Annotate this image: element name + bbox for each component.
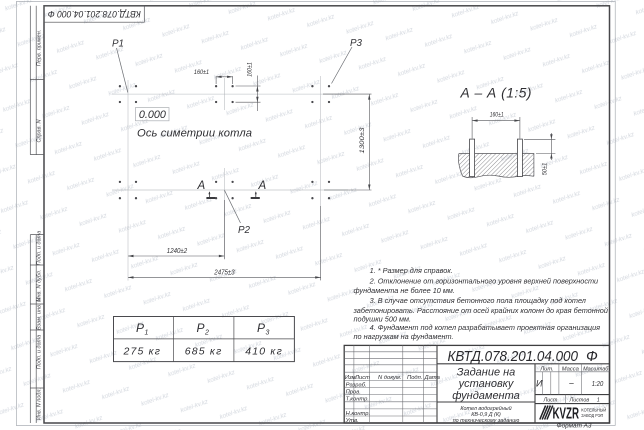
svg-text:2475±3: 2475±3 (213, 267, 234, 276)
svg-text:забетонировать. Расстояние от: забетонировать. Расстояние от осей крайн… (353, 306, 608, 315)
svg-text:Взам. инв. N: Взам. инв. N (36, 298, 42, 330)
svg-text:И: И (536, 379, 543, 389)
svg-text:2. Отклонение от горизонтально: 2. Отклонение от горизонтального уровня … (369, 277, 599, 286)
svg-text:N докум.: N докум. (378, 375, 401, 381)
svg-text:50±1: 50±1 (542, 162, 549, 175)
svg-text:Перв. примен.: Перв. примен. (36, 30, 42, 67)
svg-text:P2: P2 (238, 224, 250, 236)
svg-text:Масса: Масса (562, 366, 580, 372)
svg-text:1300±3: 1300±3 (359, 127, 366, 153)
svg-text:1: 1 (597, 398, 600, 404)
svg-text:установку: установку (458, 378, 515, 390)
svg-text:Т.контр.: Т.контр. (346, 397, 369, 403)
svg-text:1. * Размер для справок.: 1. * Размер для справок. (370, 266, 453, 275)
svg-text:P: P (136, 321, 144, 335)
svg-text:1: 1 (145, 330, 149, 337)
svg-text:2: 2 (204, 330, 209, 337)
svg-text:160±1: 160±1 (247, 62, 254, 77)
svg-text:160±1: 160±1 (490, 112, 504, 119)
svg-text:P3: P3 (350, 37, 362, 49)
svg-text:Котел водогрейный: Котел водогрейный (460, 405, 511, 412)
svg-text:1240±2: 1240±2 (167, 246, 187, 255)
svg-text:P: P (257, 321, 265, 335)
svg-text:Лист: Лист (543, 398, 558, 404)
svg-text:3. В случае отсутствия бетонно: 3. В случае отсутствия бетонного пола пл… (370, 296, 586, 305)
svg-text:Справ. N: Справ. N (36, 119, 42, 142)
svg-text:Формат А3: Формат А3 (557, 422, 592, 429)
svg-text:410 кг: 410 кг (245, 346, 282, 358)
svg-text:КВТД.078.201.04.000: КВТД.078.201.04.000 (448, 349, 579, 365)
svg-text:1:20: 1:20 (592, 379, 604, 388)
svg-text:Ось симетрии котла: Ось симетрии котла (137, 127, 252, 139)
svg-text:3: 3 (266, 330, 270, 337)
svg-text:Инв. N подл.: Инв. N подл. (36, 388, 42, 420)
svg-text:P1: P1 (112, 38, 124, 50)
svg-text:Масштаб: Масштаб (583, 366, 609, 372)
svg-text:Лит.: Лит. (539, 366, 554, 372)
svg-text:КОТЕЛЬНЫЙ: КОТЕЛЬНЫЙ (581, 406, 606, 413)
svg-text:по техническому заданию: по техническому заданию (453, 418, 520, 424)
svg-text:Дата: Дата (424, 375, 441, 381)
svg-text:Инв. N дубл.: Инв. N дубл. (36, 270, 42, 302)
svg-text:КВТД.078.201.04.000 Ф: КВТД.078.201.04.000 Ф (48, 9, 141, 19)
svg-text:Разраб.: Разраб. (346, 382, 367, 388)
svg-text:Утв.: Утв. (345, 418, 359, 424)
svg-text:Лист: Лист (354, 375, 370, 381)
svg-text:Подп. и дата: Подп. и дата (36, 335, 42, 369)
svg-text:Подп. и дата: Подп. и дата (36, 231, 42, 265)
svg-text:ЗАВОД РЭП: ЗАВОД РЭП (581, 413, 603, 418)
svg-text:Пров.: Пров. (346, 390, 361, 396)
svg-text:0.000: 0.000 (139, 109, 166, 121)
svg-text:KVZR: KVZR (553, 405, 580, 422)
svg-text:Подп.: Подп. (407, 375, 422, 381)
svg-text:Н.контр.: Н.контр. (346, 411, 371, 417)
svg-text:160±1: 160±1 (194, 69, 210, 76)
svg-text:–: – (568, 378, 574, 387)
svg-text:4. Фундамент под котел разраба: 4. Фундамент под котел разрабатывает про… (370, 323, 601, 332)
svg-text:Задание на: Задание на (457, 366, 516, 378)
svg-text:фундамента не более 10 мм.: фундамента не более 10 мм. (354, 286, 455, 295)
svg-text:685 кг: 685 кг (185, 346, 222, 358)
svg-text:Листов: Листов (569, 398, 590, 404)
svg-text:А: А (258, 180, 267, 192)
svg-text:P: P (196, 321, 204, 335)
svg-text:фундамента: фундамента (452, 390, 520, 402)
svg-text:А – А (1:5): А – А (1:5) (460, 86, 532, 101)
svg-text:А: А (197, 180, 206, 192)
svg-text:Ф: Ф (586, 349, 598, 365)
svg-text:подушки 500 мм.: подушки 500 мм. (354, 315, 412, 324)
svg-text:275 кг: 275 кг (122, 346, 160, 358)
svg-text:по нагрузкам на фундамент.: по нагрузкам на фундамент. (354, 332, 454, 341)
